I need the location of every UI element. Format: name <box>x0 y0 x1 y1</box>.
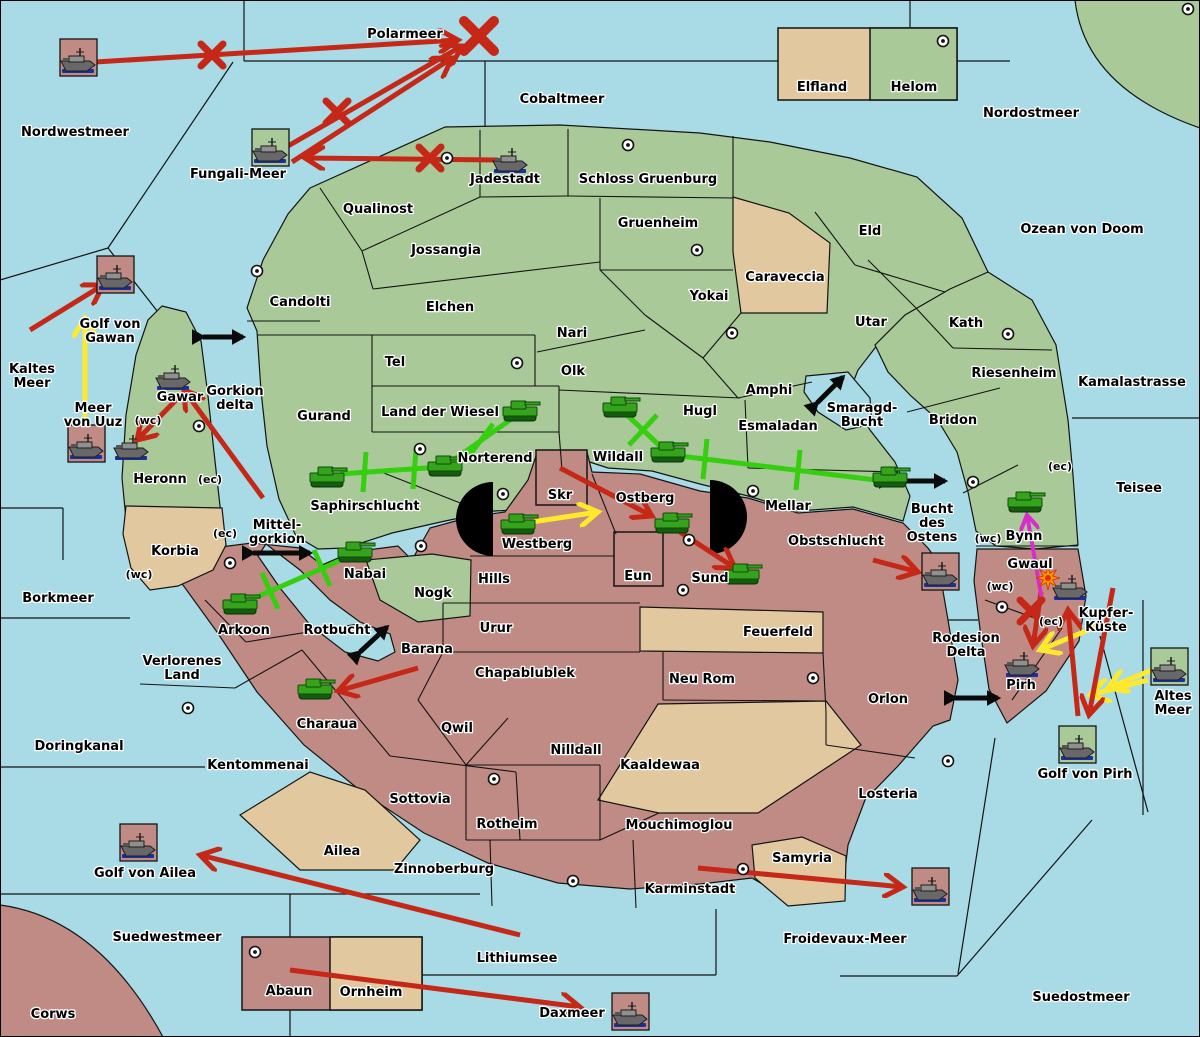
sea-label-mittelgorkion: Mittel-gorkion <box>249 518 305 547</box>
territory-label-tel: Tel <box>385 355 405 370</box>
sea-label-golf-von-ailea: Golf von Ailea <box>94 866 196 881</box>
supply-center-icon <box>489 774 500 785</box>
territory-label-mellar: Mellar <box>765 499 811 514</box>
sea-label-cobaltmeer: Cobaltmeer <box>520 92 605 107</box>
territory-label-korbia: Korbia <box>151 544 199 559</box>
territory-label-nabai: Nabai <box>344 567 386 582</box>
territory-label-gruenheim: Gruenheim <box>618 216 698 231</box>
sea-label-kaltes-meer: KaltesMeer <box>9 362 55 391</box>
sea-label-teisee: Teisee <box>1116 481 1162 496</box>
territory-label-gwaul: Gwaul <box>1007 557 1052 572</box>
territory-label-gawar: Gawar <box>157 390 204 405</box>
territory-label-amphi: Amphi <box>746 383 793 398</box>
supply-center-icon <box>498 489 509 500</box>
territory-label-hills: Hills <box>478 572 510 587</box>
territory-label-wildall: Wildall <box>593 450 643 465</box>
territory-label-orlon: Orlon <box>868 692 908 707</box>
coast-marker: (ec) <box>1048 460 1072 473</box>
territory-label-candolti: Candolti <box>270 295 331 310</box>
supply-center-icon <box>194 421 205 432</box>
territory-label-kath: Kath <box>949 316 983 331</box>
coast-marker: (ec) <box>198 473 222 486</box>
territory-label-land-der-wiesel: Land der Wiesel <box>381 405 499 420</box>
sea-label-golf-von-pirh: Golf von Pirh <box>1037 767 1132 782</box>
supply-center-icon <box>252 266 263 277</box>
sea-label-suedostmeer: Suedostmeer <box>1032 990 1130 1005</box>
territory-label-kentommenai: Kentommenai <box>207 758 308 773</box>
territory-label-bynn: Bynn <box>1006 529 1043 544</box>
territory-label-elchen: Elchen <box>426 300 474 315</box>
territory-label-helom: Helom <box>891 80 938 95</box>
sea-label-polarmeer: Polarmeer <box>367 27 443 42</box>
territory-label-sottovia: Sottovia <box>389 792 450 807</box>
supply-center-icon <box>250 947 261 958</box>
supply-center-icon <box>684 535 695 546</box>
territory-label-hugl: Hugl <box>683 404 717 419</box>
territory-label-rotheim: Rotheim <box>476 817 537 832</box>
territory-label-ailea: Ailea <box>324 844 361 859</box>
territory-label-olk: Olk <box>561 364 586 379</box>
territory-label-nari: Nari <box>557 326 588 341</box>
supply-center-icon <box>442 153 453 164</box>
territory-label-samyria: Samyria <box>772 851 832 866</box>
coast-marker: (ec) <box>1039 615 1063 628</box>
territory-label-qualinost: Qualinost <box>343 202 413 217</box>
supply-center-icon <box>938 36 949 47</box>
supply-center-icon <box>623 140 634 151</box>
sea-label-froidevaux-meer: Froidevaux-Meer <box>783 932 907 947</box>
supply-center-icon <box>568 876 579 887</box>
coast-marker: (wc) <box>987 580 1014 593</box>
supply-center-icon <box>808 673 819 684</box>
territory-label-sund: Sund <box>691 571 728 586</box>
territory-label-caraveccia: Caraveccia <box>745 270 824 285</box>
territory-label-heronn: Heronn <box>133 472 187 487</box>
territory-label-feuerfeld: Feuerfeld <box>743 625 813 640</box>
territory-label-kaaldewaa: Kaaldewaa <box>620 758 700 773</box>
territory-label-riesenheim: Riesenheim <box>971 366 1056 381</box>
coast-marker: (wc) <box>975 532 1002 545</box>
territory-label-norterend: Norterend <box>457 451 532 466</box>
territory-label-zinnoberburg: Zinnoberburg <box>394 862 494 877</box>
sea-label-kupfer-kueste: Kupfer-Küste <box>1079 606 1134 635</box>
territory-label-saphirschlucht: Saphirschlucht <box>310 499 419 514</box>
sea-label-suedwestmeer: Suedwestmeer <box>112 930 222 945</box>
supply-center-icon <box>512 358 523 369</box>
territory-label-urur: Urur <box>480 621 513 636</box>
territory-label-ostberg: Ostberg <box>616 491 675 506</box>
sea-label-kamalastrasse: Kamalastrasse <box>1078 375 1186 390</box>
sea-label-doringkanal: Doringkanal <box>34 739 123 754</box>
sea-label-altes-meer: AltesMeer <box>1154 689 1192 718</box>
supply-center-icon <box>678 585 689 596</box>
supply-center-icon <box>738 864 749 875</box>
territory-label-eld: Eld <box>859 224 882 239</box>
sea-label-rotbucht: Rotbucht <box>304 623 371 638</box>
supply-center-icon <box>225 558 236 569</box>
sea-label-golf-von-gawan: Golf vonGawan <box>80 317 141 346</box>
territory-label-elfland: Elfland <box>797 80 847 95</box>
territory-label-westberg: Westberg <box>502 537 572 552</box>
sea-label-corws: Corws <box>31 1007 76 1022</box>
territory-label-schloss-gruenburg: Schloss Gruenburg <box>579 172 717 187</box>
territory-label-pirh: Pirh <box>1006 678 1036 693</box>
territory-label-mouchimoglou: Mouchimoglou <box>626 818 733 833</box>
supply-center-icon <box>1003 329 1014 340</box>
supply-center-icon <box>692 245 703 256</box>
supply-center-icon <box>183 703 194 714</box>
territory-label-skr: Skr <box>548 488 573 503</box>
move-arrow-red <box>305 158 498 160</box>
sea-label-daxmeer: Daxmeer <box>539 1006 605 1021</box>
game-map[interactable]: NordwestmeerPolarmeerCobaltmeerNordostme… <box>0 0 1200 1037</box>
territory-label-bridon: Bridon <box>929 413 977 428</box>
territory-label-ornheim: Ornheim <box>340 985 403 1000</box>
territory-label-obstschlucht: Obstschlucht <box>788 534 884 549</box>
territory-label-gurand: Gurand <box>297 409 351 424</box>
supply-center-icon <box>416 541 427 552</box>
territory-label-esmaladan: Esmaladan <box>738 419 818 434</box>
sea-label-nordwestmeer: Nordwestmeer <box>21 125 129 140</box>
coast-marker: (wc) <box>135 414 162 427</box>
supply-center-icon <box>968 477 979 488</box>
territory-label-qwil: Qwil <box>441 721 473 736</box>
supply-center-icon <box>415 444 426 455</box>
territory-label-nilldall: Nilldall <box>550 743 601 758</box>
supply-center-icon <box>943 756 954 767</box>
territory-label-eun: Eun <box>624 569 651 584</box>
territory-label-jossangia: Jossangia <box>410 243 481 258</box>
territory-label-utar: Utar <box>855 315 888 330</box>
sea-label-ozean-von-doom: Ozean von Doom <box>1020 222 1143 237</box>
territory-label-nogk: Nogk <box>414 586 452 601</box>
territory-label-losteria: Losteria <box>858 787 918 802</box>
coast-marker: (ec) <box>213 527 237 540</box>
territory-label-neu-rom: Neu Rom <box>669 672 735 687</box>
coast-marker: (wc) <box>126 568 153 581</box>
territory-label-chapablublek: Chapablublek <box>475 666 575 681</box>
sea-label-nordostmeer: Nordostmeer <box>983 106 1080 121</box>
supply-center-icon <box>1183 4 1194 15</box>
sea-label-lithiumsee: Lithiumsee <box>477 951 558 966</box>
sea-label-borkmeer: Borkmeer <box>22 591 94 606</box>
territory-label-abaun: Abaun <box>266 984 313 999</box>
supply-center-icon <box>727 328 738 339</box>
territory-label-barana: Barana <box>401 642 453 657</box>
supply-center-icon <box>748 486 759 497</box>
territory-label-arkoon: Arkoon <box>218 623 270 638</box>
map-viewport: NordwestmeerPolarmeerCobaltmeerNordostme… <box>0 0 1200 1037</box>
sea-label-fungali-meer: Fungali-Meer <box>190 167 287 182</box>
territory-label-jadestadt: Jadestadt <box>469 172 540 187</box>
territory-label-karminstadt: Karminstadt <box>645 882 736 897</box>
supply-center-icon <box>997 602 1008 613</box>
territory-label-yokai: Yokai <box>688 289 728 304</box>
territory-label-charaua: Charaua <box>297 717 358 732</box>
